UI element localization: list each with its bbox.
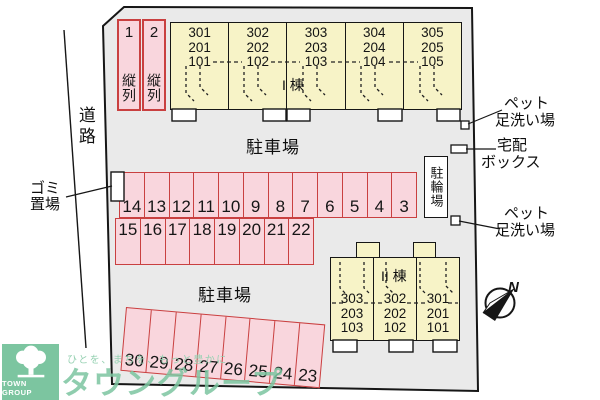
road-label: 道路 — [76, 106, 94, 148]
parking-space: 10 — [219, 173, 244, 217]
parking-space: 21 — [265, 219, 290, 264]
parking-space: 11 — [194, 173, 219, 217]
parking-space: 17 — [166, 219, 191, 264]
site-plan: 1 縦列 2 縦列 301 201 101 302 202 102 303 20… — [0, 0, 600, 400]
parking-row-middle: 15 16 17 18 19 20 21 22 — [115, 218, 314, 265]
space-number: 21 — [265, 220, 289, 240]
parking-space: 7 — [293, 173, 318, 217]
space-number: 3 — [392, 197, 416, 217]
parking-space: 12 — [170, 173, 195, 217]
building-2-stairwell — [356, 242, 380, 258]
unit-number: 303 — [287, 26, 344, 41]
space-number: 1 — [125, 24, 133, 41]
building-2-porches — [333, 340, 457, 352]
brand-logo: TOWN GROUP — [2, 344, 59, 400]
unit-number: 301 — [417, 292, 459, 307]
building-1-stack-2: 302 202 102 — [229, 23, 287, 109]
space-number: 2 — [150, 24, 158, 41]
pet-wash-top-label-line2: 足洗い場 — [495, 113, 555, 129]
unit-number: 204 — [346, 41, 403, 56]
unit-number: 101 — [171, 55, 228, 70]
building-1: 301 201 101 302 202 102 303 203 103 304 … — [170, 22, 462, 110]
parking-space: 4 — [368, 173, 393, 217]
parking-space: 6 — [318, 173, 343, 217]
space-number: 10 — [219, 197, 243, 217]
parking-space: 18 — [190, 219, 215, 264]
tandem-label: 縦列 — [119, 73, 139, 103]
building-2-stairwell — [413, 242, 436, 258]
unit-number: 202 — [229, 41, 286, 56]
space-number: 22 — [289, 220, 313, 240]
pet-wash-bottom-label-line2: 足洗い場 — [495, 223, 555, 239]
unit-number: 303 — [331, 292, 373, 307]
tandem-label: 縦列 — [144, 73, 164, 103]
brand-tagline: ひとを、まちを、もっと豊かに — [67, 351, 228, 366]
parking-space: 14 — [120, 173, 145, 217]
compass-icon: N — [483, 279, 520, 321]
unit-number: 201 — [417, 307, 459, 322]
unit-number: 202 — [374, 307, 416, 322]
pet-wash-top-label-line1: ペット — [504, 96, 549, 112]
parking-space: 13 — [145, 173, 170, 217]
space-number: 17 — [166, 220, 190, 240]
parking-space: 3 — [392, 173, 416, 217]
unit-number: 101 — [417, 321, 459, 336]
building-1-stack-4: 304 204 104 — [346, 23, 404, 109]
road-edge-line — [64, 30, 86, 348]
unit-number: 201 — [171, 41, 228, 56]
parking-space: 20 — [240, 219, 265, 264]
parking-space: 19 — [215, 219, 240, 264]
parking-label-bottom: 駐車場 — [198, 287, 252, 305]
trash-area-label-line1: ゴミ — [24, 181, 66, 197]
unit-number: 102 — [374, 321, 416, 336]
unit-number: 205 — [404, 41, 461, 56]
space-number: 9 — [244, 197, 268, 217]
pet-wash-marker-bottom — [451, 216, 460, 225]
building-2-name: II 棟 — [381, 269, 407, 284]
building-1-name: I 棟 — [282, 78, 304, 93]
space-number: 5 — [343, 197, 367, 217]
trash-area-label-line2: 置場 — [24, 197, 66, 213]
parking-space: 15 — [116, 219, 141, 264]
space-number: 19 — [215, 220, 239, 240]
building-1-stack-5: 305 205 105 — [404, 23, 461, 109]
unit-number: 302 — [229, 26, 286, 41]
space-number: 7 — [293, 197, 317, 217]
space-number: 20 — [240, 220, 264, 240]
delivery-box-marker — [451, 145, 467, 153]
space-number: 18 — [190, 220, 214, 240]
unit-number: 203 — [331, 307, 373, 322]
brand-name: TOWN GROUP — [2, 379, 59, 397]
space-number: 12 — [170, 197, 194, 217]
building-1-stack-1: 301 201 101 — [171, 23, 229, 109]
unit-number: 105 — [404, 55, 461, 70]
tree-icon — [6, 344, 56, 379]
parking-space: 22 — [289, 219, 313, 264]
pet-wash-marker-top — [461, 121, 469, 129]
unit-number: 302 — [374, 292, 416, 307]
space-number: 15 — [116, 220, 140, 240]
space-number: 13 — [145, 197, 169, 217]
parking-space: 9 — [244, 173, 269, 217]
unit-number: 102 — [229, 55, 286, 70]
unit-number: 103 — [287, 55, 344, 70]
space-number: 23 — [295, 365, 321, 387]
building-2-stack-1: 303 203 103 — [331, 258, 374, 340]
parking-row-top: 14 13 12 11 10 9 8 7 6 5 4 3 — [119, 172, 417, 218]
unit-number: 301 — [171, 26, 228, 41]
parking-space: 23 — [295, 323, 324, 387]
parking-space: 8 — [269, 173, 294, 217]
space-number: 6 — [318, 197, 342, 217]
trash-area-label: ゴミ 置場 — [24, 181, 66, 213]
parking-space: 16 — [141, 219, 166, 264]
unit-number: 304 — [346, 26, 403, 41]
space-number: 4 — [368, 197, 392, 217]
delivery-box-label-line2: ボックス — [481, 155, 541, 171]
space-number: 14 — [120, 197, 144, 217]
bicycle-parking-box: 駐輪場 — [424, 156, 448, 218]
delivery-box-label-line1: 宅配 — [497, 138, 527, 154]
space-number: 8 — [269, 197, 293, 217]
tandem-space-1: 1 縦列 — [117, 19, 141, 111]
bicycle-parking-label: 駐輪場 — [427, 166, 446, 208]
unit-number: 104 — [346, 55, 403, 70]
building-1-stack-3: 303 203 103 — [287, 23, 345, 109]
building-1-porches — [172, 109, 460, 121]
unit-number: 103 — [331, 321, 373, 336]
tandem-space-2: 2 縦列 — [142, 19, 166, 111]
unit-number: 203 — [287, 41, 344, 56]
parking-space: 5 — [343, 173, 368, 217]
unit-number: 305 — [404, 26, 461, 41]
compass-north-label: N — [508, 279, 520, 296]
space-number: 16 — [141, 220, 165, 240]
parking-label-top: 駐車場 — [246, 139, 300, 157]
space-number: 11 — [194, 197, 218, 217]
building-2-stack-3: 301 201 101 — [417, 258, 459, 340]
pet-wash-bottom-label-line1: ペット — [504, 206, 549, 222]
